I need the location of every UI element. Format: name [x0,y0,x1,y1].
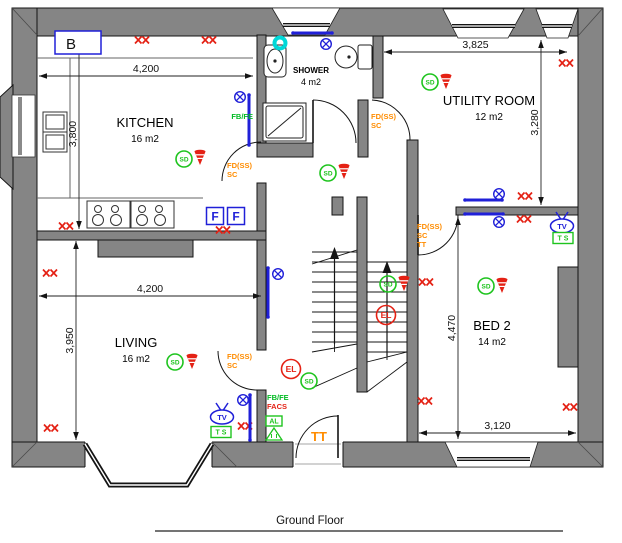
window-bed2 [445,442,538,467]
label-text: SC [417,231,428,240]
dim-arrowhead [455,217,461,225]
smoke-detector-icon: SD [301,373,317,389]
radiator-end [248,393,252,397]
dim-arrowhead [39,293,47,299]
radiator-icon [463,212,505,216]
chimney-breast-living [98,240,193,257]
radiator-end [248,438,252,442]
socket-icon [135,37,149,44]
annotation-label: FD(SS)SC [227,352,253,370]
plan-title: Ground Floor [276,515,344,527]
floor-plan-canvas: 4,2003,8003,8253,2804,2003,9504,4703,120… [0,0,622,543]
ceiling-light-icon [235,92,246,103]
label-text: F [232,209,239,223]
boiler-box-icon: B [55,31,101,54]
doors [218,100,458,458]
sounder-top [497,278,508,282]
label-text: SC [227,170,238,179]
ceiling-light-icon [321,39,332,50]
label-text: 3,280 [529,109,541,135]
radiator-end [247,93,251,97]
dim-arrowhead [73,241,79,249]
ceiling-light-icon [494,189,505,200]
ceiling-light-icon [494,217,505,228]
fridge-box-icon: F [207,208,224,225]
annotation-label: FD(SS)SC [371,112,397,130]
label-text: 4,470 [446,315,458,341]
sounder-icon [441,74,452,89]
smoke-detector-icon: SD [380,276,396,292]
label-text: FD(SS) [227,352,253,361]
socket-icon [563,404,577,411]
dim-arrowhead [455,431,461,439]
chimney-left [0,85,13,189]
fan-ring [275,38,286,49]
stair-winder [367,362,407,392]
wall-bed2-west [407,140,418,442]
dimension: 4,200 [39,283,261,299]
bay-opening [85,442,212,468]
label-text: 3,825 [462,39,488,51]
dim-arrowhead [39,73,47,79]
wall-stair-stub [332,197,343,215]
smoke-detector-icon: SD [478,278,494,294]
annotation-label: FACS [267,402,287,411]
extractor-fan-icon [275,38,286,49]
room-label: KITCHEN16 m2 [116,115,173,145]
room-label: UTILITY ROOM12 m2 [443,93,535,123]
label-text: AL [269,419,279,426]
alarm-box-icon: AL [266,416,282,440]
socket-icon [418,398,432,405]
dimension: 3,280 [529,40,544,205]
label-text: SC [227,361,238,370]
label-text: FB/FE [231,112,253,121]
dim-arrowhead [384,49,392,55]
label-text: EL [286,364,297,374]
toilet [335,45,372,69]
socket-icon [44,425,58,432]
radiator-end [463,198,467,202]
smoke-detector-icon: SD [320,165,336,181]
label-text: B [66,36,76,53]
radiator-end [266,266,270,270]
sounder-top [339,164,350,168]
label-text: SD [425,79,434,86]
label-text: TT [417,240,427,249]
hob-unit [87,201,174,228]
socket-icon [559,60,573,67]
socket-icon [518,193,532,200]
wall-living-east-lower [257,390,266,442]
label-text: 16 m2 [131,134,159,145]
room-label: BED 214 m2 [473,318,511,348]
radiator-end [501,212,505,216]
oven-unit [43,112,67,152]
annotation-label: FD(SS)SC [227,161,253,179]
label-text: KITCHEN [116,115,173,130]
radiator-icon [463,198,504,202]
label-text: 14 m2 [478,337,506,348]
wall-living-east-upper [257,240,266,350]
wall-shower-east-upper [373,36,383,98]
sounder-icon [195,150,206,165]
label-text: 3,120 [484,420,510,432]
dim-arrowhead [76,221,82,229]
dimension: 3,800 [67,39,82,229]
label-text: 16 m2 [122,354,150,365]
sounder-icon [339,164,350,179]
sounder-top [187,354,198,358]
label-text: BED 2 [473,318,511,333]
label-text: SD [170,359,179,366]
floor-plan: 4,2003,8003,8253,2804,2003,9504,4703,120… [0,0,622,543]
dim-arrowhead [538,40,544,48]
label-text: 12 m2 [475,112,503,123]
label-text: SD [179,156,188,163]
annotation-label: TT [311,429,327,444]
label-text: EL [381,310,392,320]
label-text: SD [323,170,332,177]
radiator-end [247,143,251,147]
socket-icon [419,279,433,286]
radiator-icon [248,393,252,442]
smoke-detector-icon: SD [167,354,183,370]
socket-icon [202,37,216,44]
label-text: FD(SS) [227,161,253,170]
label-text: SD [304,378,313,385]
wall-right [578,8,603,467]
smoke-detector-icon: SD [176,151,192,167]
stair-up-arrow-head [330,247,339,259]
room-label: LIVING16 m2 [115,335,158,365]
label-text: 4,200 [133,63,159,75]
dimension: 4,470 [446,217,461,439]
label-text: FD(SS) [371,112,397,121]
dim-arrowhead [245,73,253,79]
sounder-top [195,150,206,154]
radiator-end [500,198,504,202]
radiator-end [330,31,334,35]
label-text: 3,800 [67,121,79,147]
label-text: FB/FE [267,393,289,402]
annotation-label: FD(SS)SCTT [417,222,443,249]
boiler-box [55,31,101,54]
label-text: F [211,209,218,223]
shower-door-arc [313,100,356,143]
tv-socket-icon: T S [211,427,231,438]
label-text: T S [216,430,227,437]
wall-shower-south [257,143,313,157]
socket-icon [43,270,57,277]
label-text: UTILITY ROOM [443,93,535,108]
radiator-icon [266,266,270,319]
stair-winder [312,368,357,388]
radiator-icon [291,31,334,35]
annotation-label: FB/FE [267,393,289,402]
label-text: 4 m2 [301,77,321,87]
ceiling-light-icon [238,395,249,406]
sounder-top [399,276,410,280]
dimension: 3,120 [419,420,576,436]
window-kitchen-left-recess [12,95,35,157]
label-text: SC [371,121,382,130]
label-text: FD(SS) [417,222,443,231]
dim-arrowhead [568,430,576,436]
socket-icon [517,216,531,223]
emergency-light-icon: EL [282,360,301,379]
warning-triangle-icon [266,428,282,440]
dim-arrowhead [73,432,79,440]
wall-kitchen-living [37,231,266,240]
dimension: 3,950 [64,241,79,440]
dim-arrowhead [538,197,544,205]
annotation-label: FB/FE [231,112,253,121]
tv-point-icon: TV [211,403,234,424]
label-text: SD [481,283,490,290]
socket-icon [59,223,73,230]
radiator-end [291,31,295,35]
label-text: 3,950 [64,327,76,353]
dimension: 4,200 [39,63,253,79]
label-text: 4,200 [137,283,163,295]
chimney-breast-bed2 [558,267,578,367]
label-text: T S [558,236,569,243]
room-label: SHOWER4 m2 [293,66,329,87]
dim-arrowhead [419,430,427,436]
tv-socket-icon: T S [553,233,573,244]
smoke-detector-icon: SD [422,74,438,90]
label-text: LIVING [115,335,158,350]
radiator-end [266,315,270,319]
sounder-icon [497,278,508,293]
label-text: SHOWER [293,66,329,75]
dim-arrowhead [559,49,567,55]
sounder-top [441,74,452,78]
label-text: SD [383,281,392,288]
title-block: Ground Floor [155,515,563,531]
shower-tray [263,103,306,141]
wall-stair-spine [357,197,367,392]
radiator-end [463,212,467,216]
wall-left [12,8,37,467]
label-text: TT [311,429,327,444]
label-text: TV [217,413,227,422]
sounder-icon [187,354,198,369]
label-text: TV [557,222,567,231]
stair-up-arrow-head [383,261,392,273]
fridge-box-icon: F [228,208,245,225]
ceiling-light-icon [273,269,284,280]
wall-shower-east-lower [358,100,368,157]
label-text: FACS [267,402,287,411]
